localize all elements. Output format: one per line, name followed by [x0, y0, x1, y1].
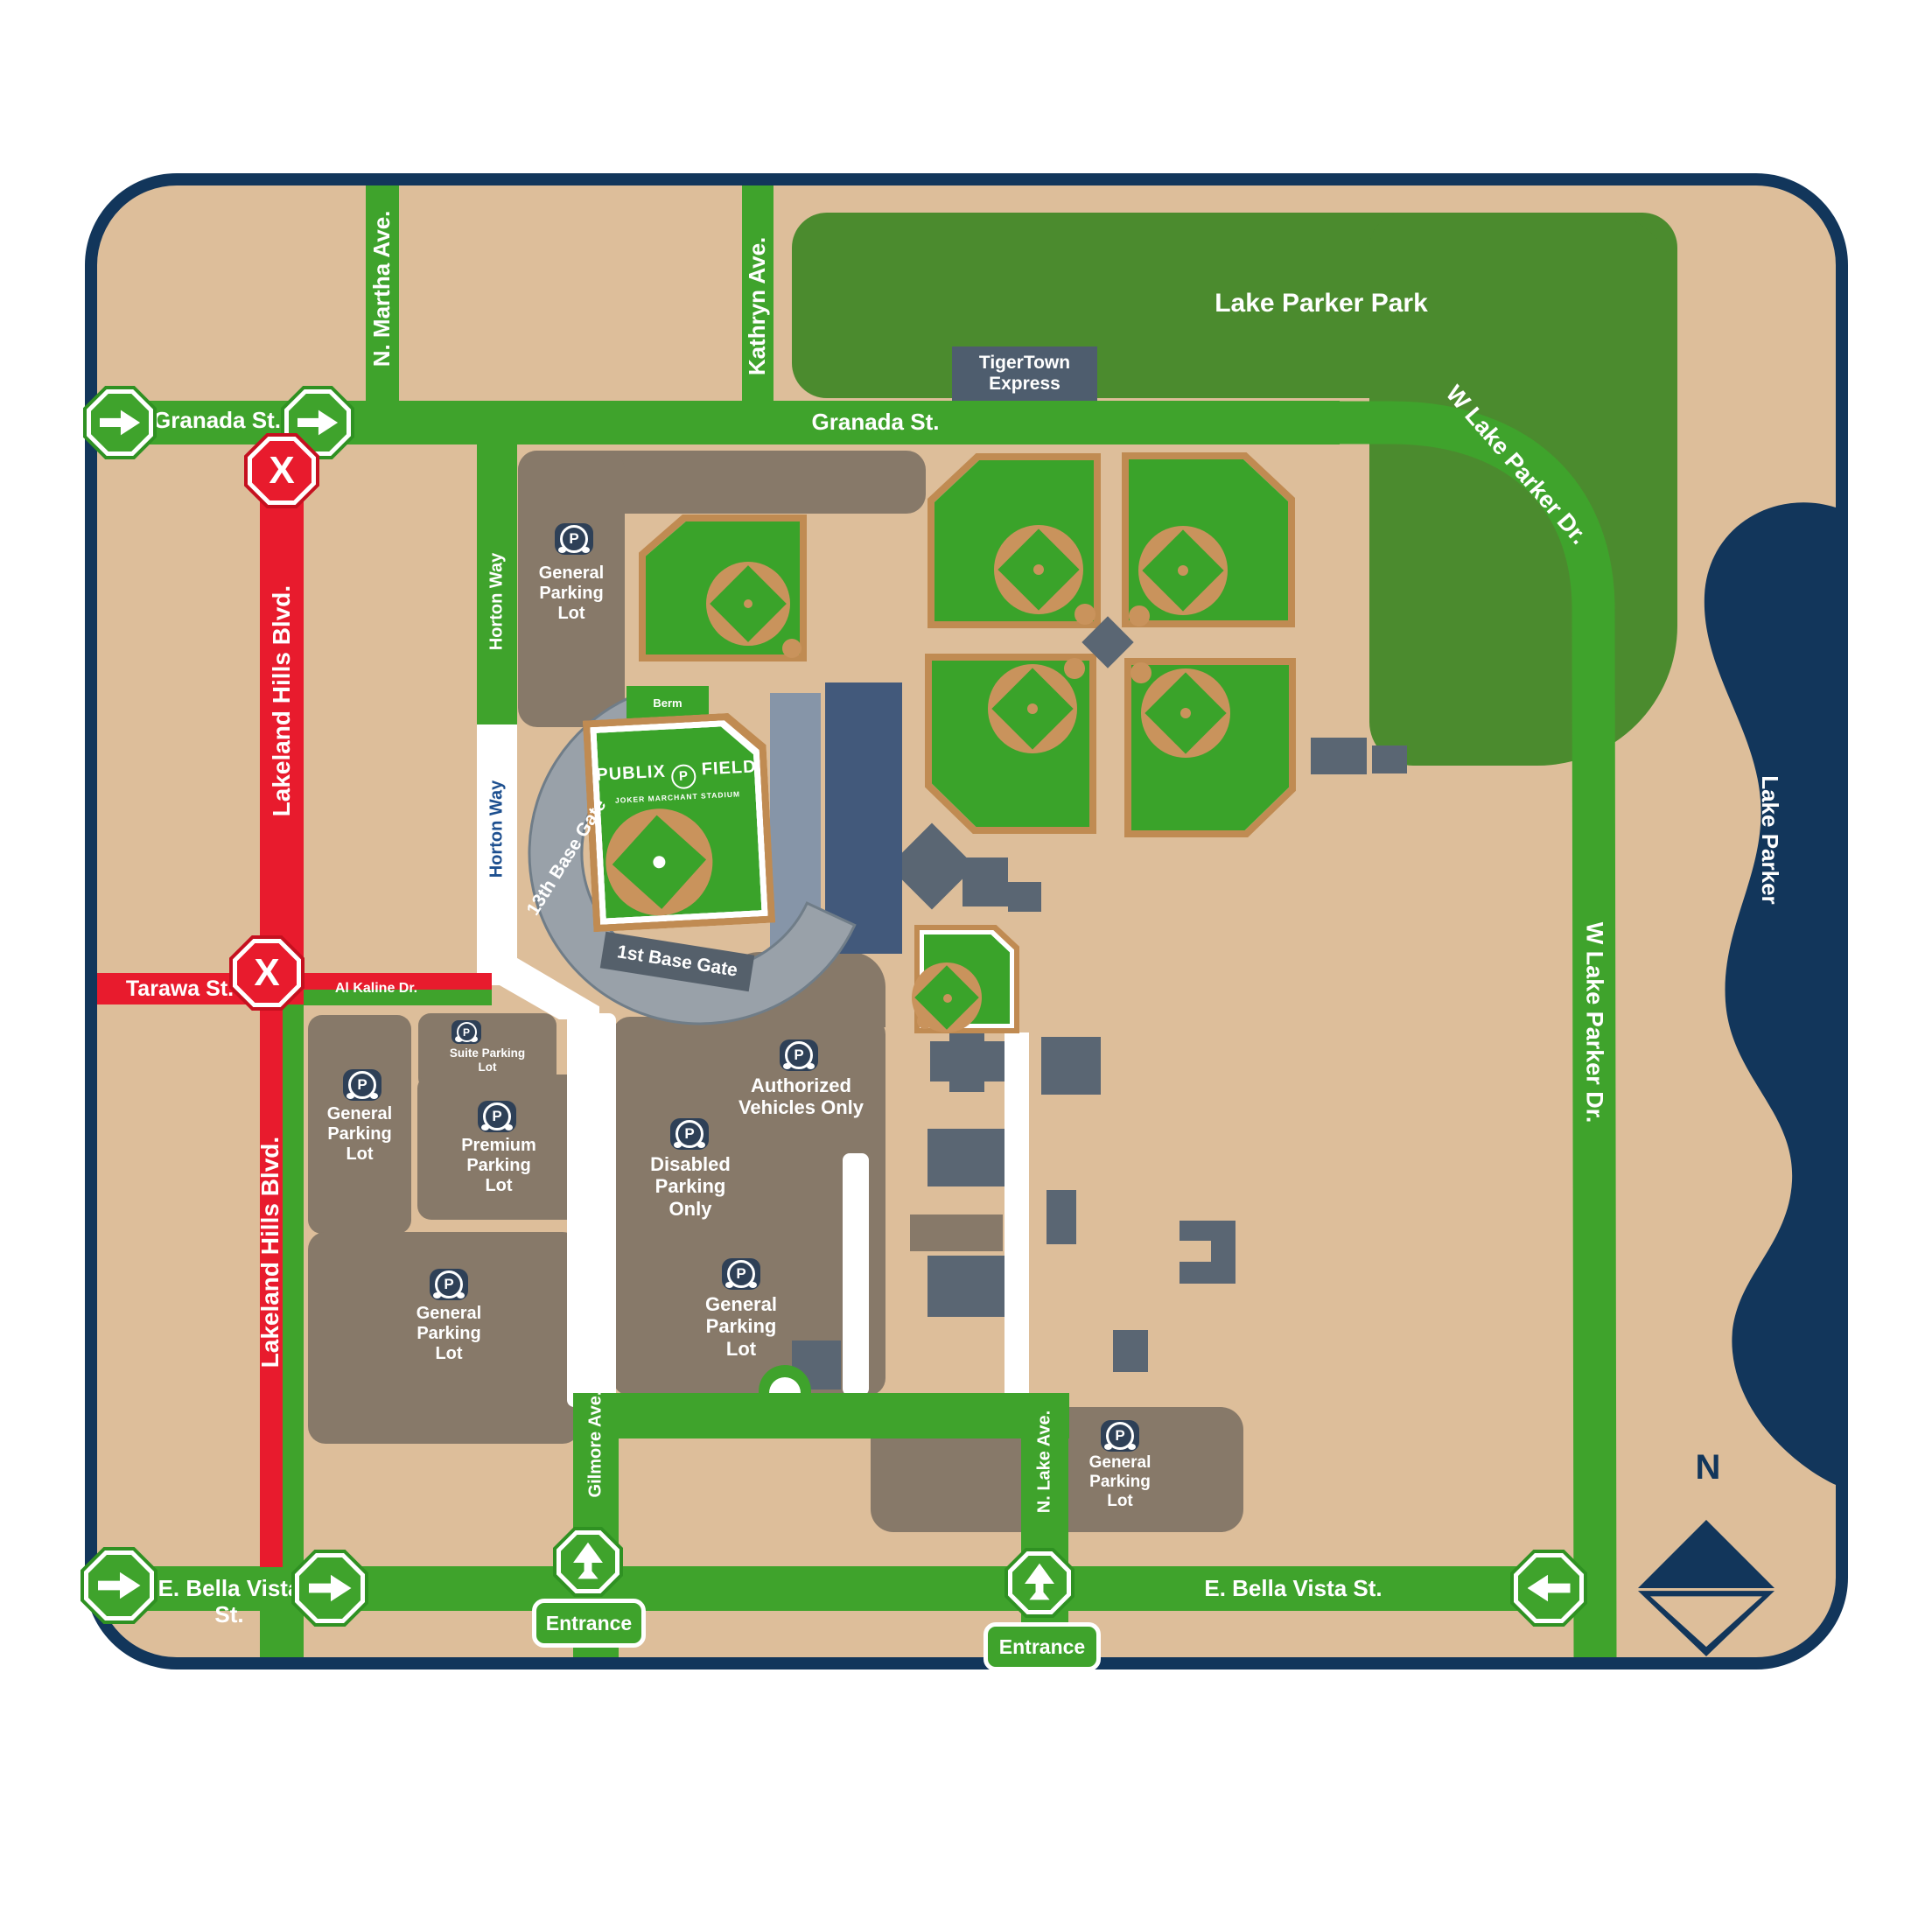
- entrance-sign-gilmore: Entrance: [532, 1599, 646, 1648]
- granada-label-left: Granada St.: [147, 408, 287, 434]
- general-lot-west-label: General Parking Lot: [308, 1104, 411, 1165]
- nlake-entrance-sign-arrow: [1004, 1548, 1074, 1618]
- parking-icon: P: [555, 523, 593, 555]
- granada-label-center: Granada St.: [803, 409, 948, 436]
- bellavista-label-left: E. Bella Vista St.: [150, 1576, 308, 1628]
- right-arrow-icon: [309, 1569, 352, 1608]
- authorized-lot-label: Authorized Vehicles Only: [724, 1074, 878, 1119]
- berm-label: Berm: [653, 697, 682, 710]
- premium-lot-label: Premium Parking Lot: [437, 1136, 560, 1196]
- entrance-sign-nlake: Entrance: [983, 1622, 1101, 1671]
- stadium-field: PUBLIX P FIELD JOKER MARCHANT STADIUM: [583, 711, 775, 933]
- road-closed-sign-tarawa: X: [229, 935, 304, 1011]
- up-arrow-icon: [569, 1541, 608, 1583]
- gilmore-entrance-sign-arrow: [553, 1527, 623, 1597]
- martha-label: N. Martha Ave.: [369, 201, 395, 376]
- tigertown-express-box: TigerTown Express: [952, 346, 1097, 401]
- parking-icon: P: [451, 1020, 481, 1044]
- parking-icon: P: [1101, 1420, 1139, 1452]
- lake-label: Lake Parker: [1756, 770, 1782, 910]
- right-arrow-icon: [297, 404, 338, 441]
- pitchers-mound: [744, 599, 752, 608]
- parking-icon: P: [430, 1269, 468, 1300]
- parking-icon: P: [722, 1258, 760, 1290]
- parking-icon: P: [478, 1101, 516, 1132]
- general-lot-southwest-label: General Parking Lot: [388, 1304, 510, 1364]
- general-lot-central-label: General Parking Lot: [697, 1293, 785, 1360]
- parking-icon: P: [780, 1039, 818, 1071]
- stadium-logo: PUBLIX P FIELD JOKER MARCHANT STADIUM: [594, 757, 760, 806]
- lakeland-label-south: Lakeland Hills Blvd.: [256, 1121, 284, 1383]
- left-arrow-icon: [1528, 1569, 1571, 1608]
- publix-p-icon: P: [671, 764, 696, 789]
- compass-north-label: N: [1682, 1448, 1734, 1487]
- parking-icon: P: [343, 1069, 381, 1101]
- general-lot-southeast-label: General Parking Lot: [1059, 1453, 1181, 1511]
- horton-label-north: Horton Way: [487, 536, 507, 668]
- general-lot-north-label: General Parking Lot: [518, 563, 625, 624]
- parking-icon: P: [670, 1118, 709, 1150]
- right-arrow-icon: [100, 404, 140, 441]
- wlakeparker-label-vertical: W Lake Parker Dr.: [1580, 905, 1607, 1141]
- lakeland-label-north: Lakeland Hills Blvd.: [268, 570, 296, 832]
- bellavista-label-right: E. Bella Vista St.: [1188, 1576, 1398, 1602]
- disabled-lot-label: Disabled Parking Only: [641, 1153, 739, 1220]
- horton-label-south: Horton Way: [487, 764, 507, 895]
- parking-map-page: Lake Parker Park: [0, 0, 1932, 1932]
- kathryn-label: Kathryn Ave.: [745, 219, 771, 394]
- compass-rose: [1638, 1520, 1774, 1656]
- right-arrow-icon: [98, 1566, 141, 1606]
- gilmore-label: Gilmore Ave.: [586, 1375, 606, 1515]
- home-plate-circle: [782, 639, 801, 658]
- up-arrow-icon: [1020, 1562, 1060, 1604]
- nlake-label: N. Lake Ave.: [1035, 1392, 1055, 1532]
- alkaline-label: Al Kaline Dr.: [319, 981, 433, 997]
- suite-lot-label: Suite Parking Lot: [422, 1046, 553, 1074]
